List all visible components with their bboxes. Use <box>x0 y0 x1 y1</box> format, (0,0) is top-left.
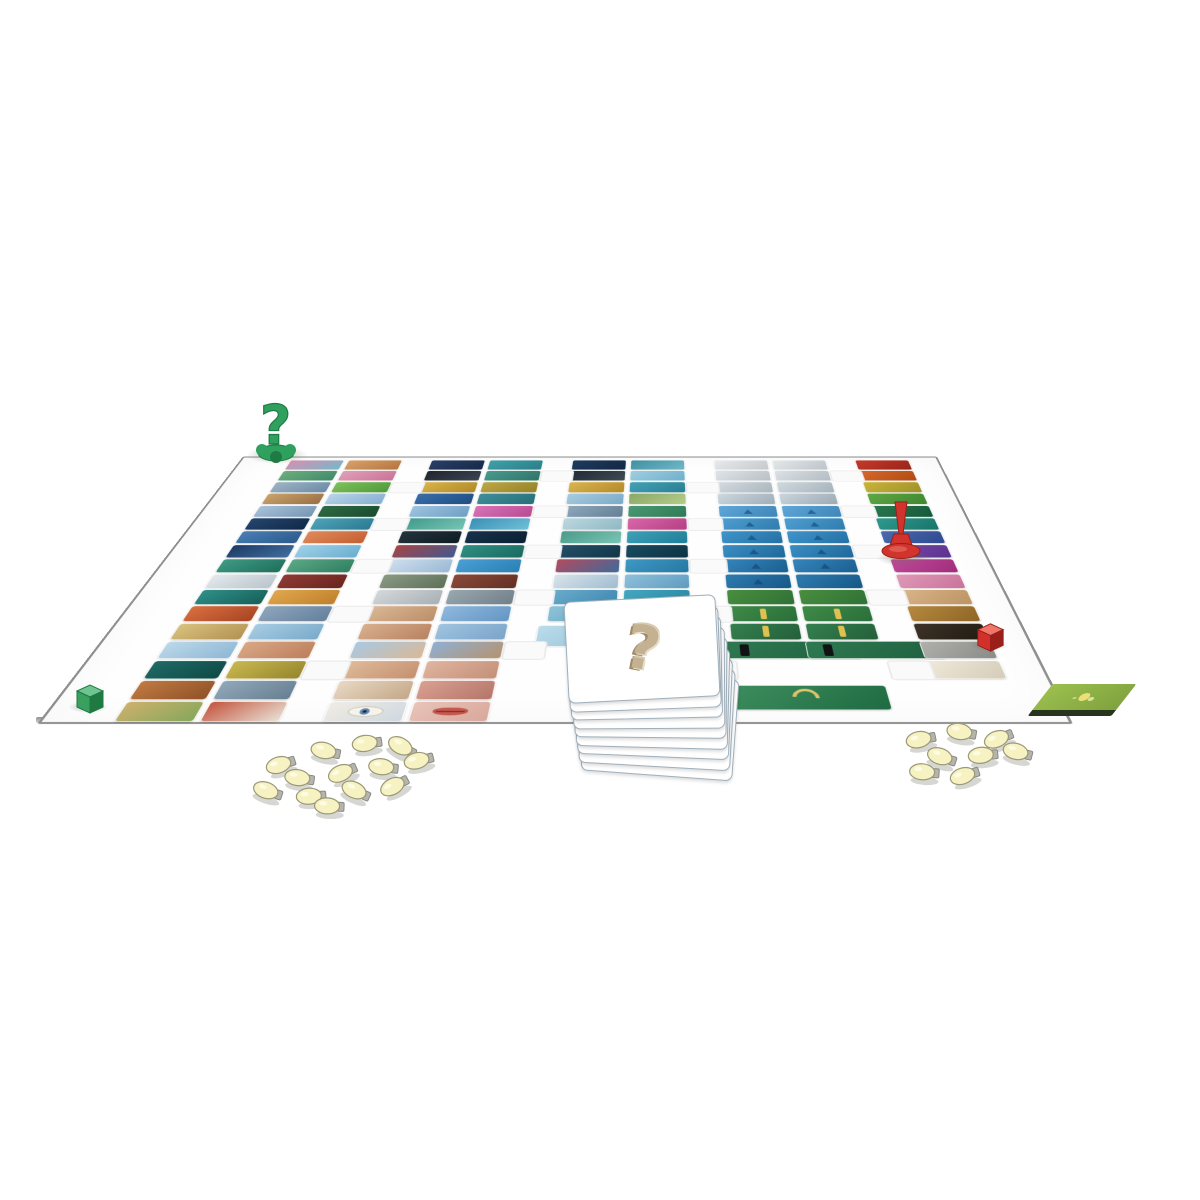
concept-tile <box>316 505 381 517</box>
concept-tile <box>626 531 688 544</box>
concept-tile <box>331 680 415 700</box>
red-cube <box>972 618 1009 659</box>
concept-tile <box>925 660 1007 679</box>
empty-slot <box>687 518 724 531</box>
empty-slot <box>349 559 394 574</box>
light-bulb-token <box>312 794 349 821</box>
concept-tile <box>275 574 348 589</box>
concept-tile <box>459 545 525 558</box>
clue-card-top: ? <box>563 594 720 704</box>
gold-bar <box>838 626 847 637</box>
concept-tile <box>261 493 326 504</box>
concept-tile <box>561 518 623 530</box>
concept-tile <box>630 460 685 470</box>
concept-tile <box>427 641 504 659</box>
black-bar <box>739 644 749 656</box>
empty-slot <box>829 471 866 482</box>
concept-tile <box>235 641 317 659</box>
concept-tile <box>234 531 304 544</box>
concept-tile <box>413 493 475 504</box>
concept-tile <box>128 680 217 700</box>
concept-tile: ▲ <box>792 559 860 573</box>
concept-tile <box>356 623 433 640</box>
concept-tile <box>214 559 287 573</box>
concept-tile <box>169 623 250 640</box>
concept-tile <box>252 505 318 517</box>
concept-tile <box>256 606 333 622</box>
concept-tile <box>554 559 620 573</box>
concept-tile <box>337 471 398 481</box>
concept-tile <box>408 701 492 722</box>
concept-tile: ▲ <box>723 559 789 573</box>
game-board: ?!▲▲▲▲▲▲▲▲▲▲▲ <box>37 457 1073 724</box>
arrow-symbol: ▲ <box>745 521 755 527</box>
black-bar <box>822 644 834 656</box>
concept-tile <box>714 460 770 470</box>
concept-tile: ▲ <box>786 531 851 544</box>
empty-slot <box>299 660 353 680</box>
concept-tile <box>113 701 205 722</box>
concept-tile <box>269 482 332 493</box>
concept-tile <box>627 505 687 517</box>
concept-tile <box>284 559 356 573</box>
concept-tile: ▲ <box>783 518 846 530</box>
eye-picture <box>346 707 385 717</box>
concept-tile <box>772 460 829 470</box>
concept-tile <box>629 482 686 493</box>
concept-tile <box>364 606 439 622</box>
concept-tile <box>277 471 339 481</box>
concept-tile <box>629 471 685 481</box>
empty-slot <box>387 482 426 493</box>
crescent-symbol <box>787 685 826 710</box>
concept-tile <box>567 482 625 493</box>
concept-tile <box>348 641 427 659</box>
arrow-symbol: ▲ <box>749 548 760 555</box>
concept-tile <box>199 701 289 722</box>
concept-tile <box>774 471 832 481</box>
arrow-symbol: ▲ <box>819 562 831 569</box>
concept-tile: ▲ <box>722 545 787 558</box>
concept-tile <box>323 493 387 504</box>
concept-tile <box>402 518 467 530</box>
concept-tile <box>624 559 689 573</box>
concept-tile <box>855 460 913 470</box>
concept-tile <box>246 623 326 640</box>
concept-tile <box>428 460 486 470</box>
concept-tile <box>330 482 392 493</box>
concept-tile <box>293 545 363 558</box>
empty-slot <box>369 518 411 531</box>
concept-tile <box>225 545 296 558</box>
concept-tile <box>143 660 229 679</box>
concept-tile <box>862 482 923 493</box>
arrow-symbol: ▲ <box>747 534 757 540</box>
concept-tile <box>798 590 869 605</box>
concept-tile <box>309 518 376 530</box>
empty-slot <box>522 545 562 559</box>
concept-tile <box>729 623 802 640</box>
concept-tile <box>627 518 688 530</box>
logo-emblem <box>1076 693 1092 701</box>
concept-tile <box>464 531 529 544</box>
concept-tile <box>266 590 341 605</box>
concept-tile <box>563 505 623 517</box>
empty-slot <box>539 471 574 482</box>
concept-tile <box>371 590 444 605</box>
concept-tile <box>423 471 482 481</box>
empty-slot <box>512 590 556 606</box>
concept-tile <box>795 574 865 589</box>
concept-tile <box>343 460 403 470</box>
concept-tile <box>454 559 522 573</box>
empty-slot <box>501 641 548 660</box>
gold-bar <box>833 609 842 619</box>
concept-tile <box>433 623 508 640</box>
concept-tile <box>728 606 799 622</box>
concept-tile <box>778 493 839 504</box>
arrow-symbol: ▲ <box>753 577 764 584</box>
concept-tile <box>340 660 422 679</box>
empty-slot <box>686 482 721 493</box>
empty-slot <box>864 590 910 606</box>
concept-tile <box>895 574 967 589</box>
concept-tile <box>552 574 620 589</box>
concept-tile <box>449 574 519 589</box>
concept-tile <box>421 660 501 679</box>
empty-slot <box>689 559 729 574</box>
concept-tile <box>181 606 260 622</box>
concept-tile <box>565 493 624 504</box>
concept-tile <box>212 680 299 700</box>
concept-tile: ▲ <box>725 574 793 589</box>
concept-tile: ▲ <box>781 505 843 517</box>
concept-tile <box>243 518 311 530</box>
concept-tile <box>480 482 539 493</box>
arrow-symbol: ▲ <box>812 534 823 540</box>
arrow-symbol: ▲ <box>816 548 827 555</box>
empty-slot <box>326 606 375 623</box>
concept-tile <box>444 590 515 605</box>
card-question-motif: ? <box>618 611 666 686</box>
concept-tile <box>716 482 774 493</box>
arrow-symbol: ▲ <box>743 508 753 514</box>
concept-tile <box>858 471 918 481</box>
concept-tile <box>408 505 471 517</box>
concept-tile <box>301 531 369 544</box>
concept-tile <box>487 460 544 470</box>
light-bulb-token <box>997 737 1038 771</box>
concept-tile <box>571 460 627 470</box>
concept-tile <box>900 590 974 605</box>
concept-tile <box>906 606 982 622</box>
concept-tile: ▲ <box>718 505 779 517</box>
light-bulb-token <box>906 760 944 788</box>
concept-tile <box>801 606 874 622</box>
concept-tile <box>628 493 686 504</box>
svg-text:?: ? <box>260 394 291 457</box>
concept-tile <box>483 471 541 481</box>
mouth-picture <box>431 708 469 716</box>
concept-tile <box>717 493 776 504</box>
gold-bar <box>760 609 768 619</box>
concept-tile <box>624 574 691 589</box>
gold-bar <box>762 626 770 637</box>
concept-tile <box>439 606 512 622</box>
concept-tile: ▲ <box>720 531 783 544</box>
arrow-symbol: ▲ <box>809 521 820 527</box>
concept-tile <box>193 590 270 605</box>
empty-slot <box>839 505 879 517</box>
concept-tile <box>384 559 454 573</box>
concept-tile <box>156 641 240 659</box>
concept-tile <box>715 471 772 481</box>
concept-tile <box>415 680 497 700</box>
board-game-product-photo: ?!▲▲▲▲▲▲▲▲▲▲▲ ? ? <box>0 0 1200 1200</box>
empty-slot <box>886 660 937 680</box>
empty-slot <box>531 505 569 517</box>
red-exclamation-mark-pawn <box>874 498 928 568</box>
concept-tile <box>776 482 835 493</box>
concept-tile <box>391 545 459 558</box>
concept-tile <box>397 531 463 544</box>
concept-tile <box>418 482 479 493</box>
concept-tile <box>726 590 796 605</box>
concept-tile <box>569 471 626 481</box>
green-question-mark-pawn: ? <box>248 394 306 468</box>
concept-tile: ▲ <box>789 545 855 558</box>
concept-tile <box>722 685 893 710</box>
concept-tile <box>557 545 621 558</box>
concept-tile: ▲ <box>719 518 781 530</box>
concept-tile <box>476 493 537 504</box>
concept-tile <box>224 660 308 679</box>
concept-tile <box>472 505 534 517</box>
concept-tile <box>625 545 689 558</box>
concept-tile <box>204 574 279 589</box>
concept-tile <box>378 574 449 589</box>
arrow-symbol: ▲ <box>806 508 817 514</box>
concept-tile <box>805 623 880 640</box>
arrow-symbol: ▲ <box>751 562 762 569</box>
green-cube <box>71 679 109 721</box>
concept-tile <box>468 518 531 530</box>
concept-tile <box>322 701 408 722</box>
concept-tile <box>559 531 622 544</box>
